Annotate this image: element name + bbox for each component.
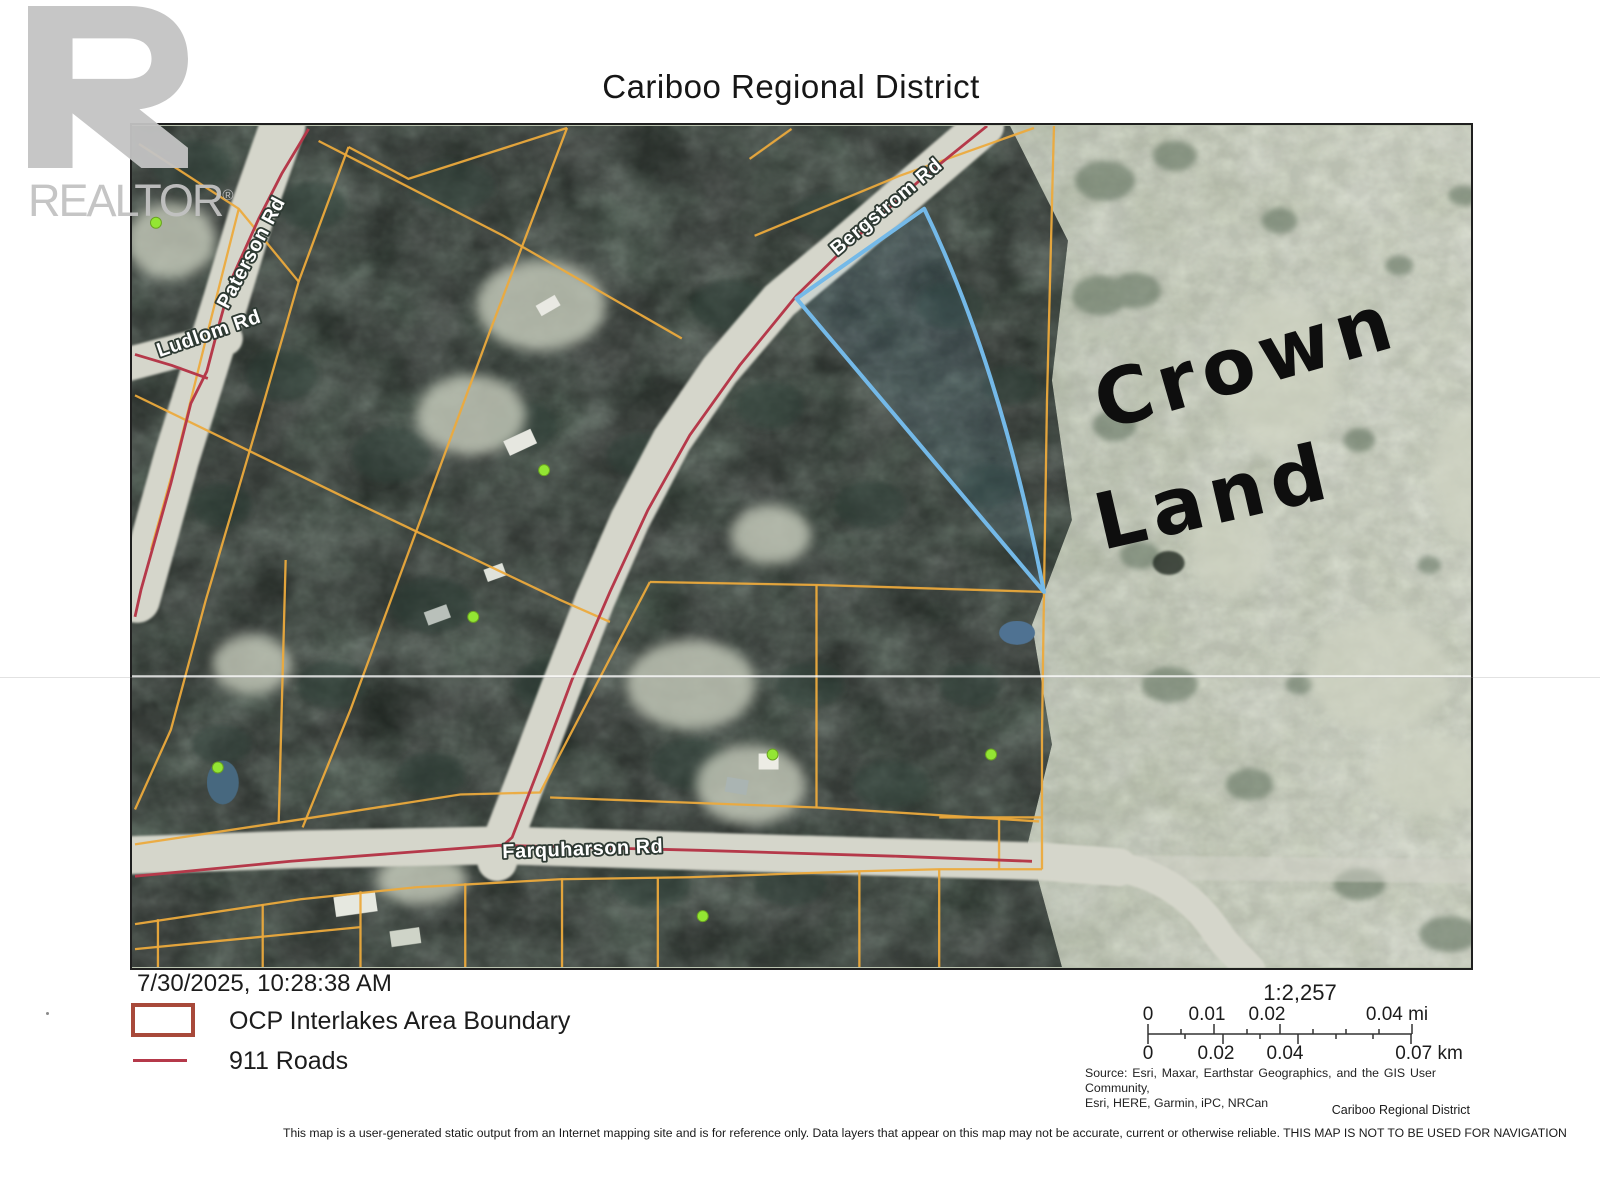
scan-seam-page xyxy=(0,677,1600,678)
realtor-logo-icon xyxy=(28,6,190,168)
district-attribution: Cariboo Regional District xyxy=(0,1103,1470,1117)
scalebar-km-labels: 0 0.02 0.04 0.07 km xyxy=(0,1043,1600,1065)
map-disclaimer: This map is a user-generated static outp… xyxy=(283,1126,1567,1140)
scan-artifact-dot xyxy=(46,1012,49,1015)
km-tick-0: 0 xyxy=(1143,1043,1154,1065)
registered-trademark-symbol: ® xyxy=(222,187,233,204)
page-title: Cariboo Regional District xyxy=(0,68,1582,106)
source-line-1: Source: Esri, Maxar, Earthstar Geographi… xyxy=(1085,1066,1485,1096)
satellite-map-image: Paterson Rd Ludlom Rd Bergstrom Rd Farqu… xyxy=(132,125,1471,968)
print-timestamp: 7/30/2025, 10:28:38 AM xyxy=(137,970,392,998)
scan-seam-map xyxy=(132,675,1471,677)
km-tick-2: 0.04 xyxy=(1267,1043,1304,1065)
km-tick-1: 0.02 xyxy=(1198,1043,1235,1065)
realtor-watermark: REALTOR® xyxy=(28,6,228,227)
scale-ratio: 1:2,257 xyxy=(1240,980,1360,1006)
map-frame: Paterson Rd Ludlom Rd Bergstrom Rd Farqu… xyxy=(130,123,1473,970)
km-tick-3: 0.07 km xyxy=(1395,1043,1463,1065)
realtor-wordmark: REALTOR® xyxy=(28,175,228,227)
